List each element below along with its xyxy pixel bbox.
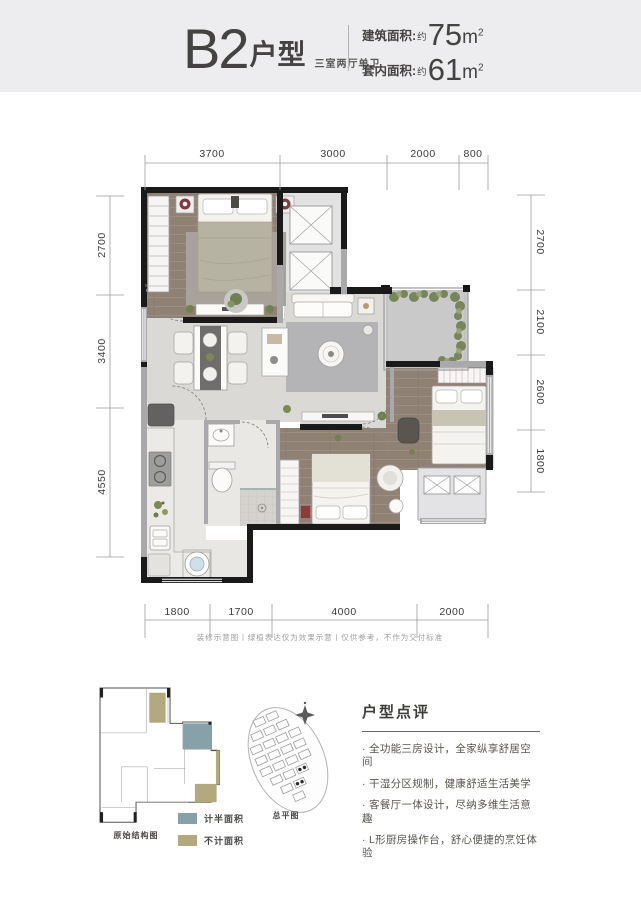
dim-bottom-3: 4000: [331, 606, 356, 618]
review-bullet-4: L形厨房操作台，舒心便捷的烹饪体验: [362, 834, 540, 860]
excluded-area-label: 不计面积: [204, 834, 244, 847]
dim-top-4: 800: [463, 148, 482, 160]
dim-bottom-4: 2000: [439, 606, 464, 618]
review-bullet-3: 客餐厅一体设计，尽纳多维生活意趣: [362, 799, 540, 825]
excluded-area-1: [149, 693, 165, 723]
dim-bottom-1: 1800: [164, 606, 189, 618]
plan-disclaimer: 装修示意图丨绿植表达仅为效果示意丨仅供参考，不作为交付标准: [95, 632, 545, 643]
dim-left-2: 3400: [96, 338, 108, 363]
dim-left-3: 4550: [96, 469, 108, 494]
review-bullet-1: 全功能三房设计，全家纵享舒居空间: [362, 743, 540, 769]
structure-diagram-caption: 原始结构图: [103, 830, 169, 841]
excluded-area-2: [216, 751, 219, 785]
dim-left-1: 2700: [96, 232, 108, 257]
dim-top-2: 3000: [320, 148, 345, 160]
legend-row-excluded-area: 不计面积: [178, 834, 244, 847]
review-divider: [362, 731, 540, 732]
dim-top-3: 2000: [410, 148, 435, 160]
dim-right-1: 2700: [534, 229, 546, 254]
legend-row-half-area: 计半面积: [178, 812, 244, 825]
site-plan: [233, 695, 344, 825]
half-area-label: 计半面积: [204, 812, 244, 825]
half-area-swatch: [178, 813, 197, 824]
site-plan-caption: 总平图: [262, 810, 310, 821]
dim-bottom-2: 1700: [228, 606, 253, 618]
dim-top-1: 3700: [199, 148, 224, 160]
excluded-area-swatch: [178, 835, 197, 846]
excluded-area-3: [195, 784, 217, 802]
dim-right-2: 2100: [534, 309, 546, 334]
half-area-room: [183, 723, 212, 749]
dim-right-3: 2600: [534, 379, 546, 404]
review-title: 户型点评: [362, 701, 540, 722]
dim-right-4: 1800: [534, 448, 546, 473]
unit-review: 户型点评 全功能三房设计，全家纵享舒居空间 干湿分区规制，健康舒适生活美学 客餐…: [362, 701, 540, 869]
review-bullet-2: 干湿分区规制，健康舒适生活美学: [362, 778, 540, 791]
area-legend: 计半面积 不计面积: [178, 812, 244, 856]
structure-diagram: [100, 688, 219, 822]
brochure-page: B2 户型 三室两厅单卫 建筑面积: 约 75 m2 套内面积: 约 61 m2: [0, 0, 641, 921]
floor-plan-graphics: 3700 3000 2000 800 1800 1700 4000 2000 2…: [0, 0, 641, 921]
